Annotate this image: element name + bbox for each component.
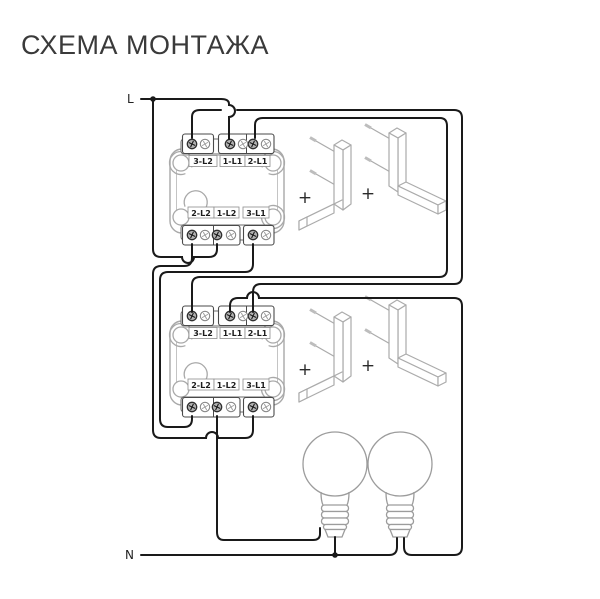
fixtures-group-2 <box>299 297 446 403</box>
switch-1-mechanism <box>169 134 284 245</box>
fixtures-group-1 <box>299 125 446 231</box>
plus-sign: + <box>298 360 312 380</box>
terminal-label: 1-L1 <box>223 157 243 166</box>
wire-line-feed-top <box>141 99 235 139</box>
terminal-label: 1-L2 <box>217 209 237 218</box>
terminal-label: 1-L1 <box>223 329 243 338</box>
label-line: L <box>127 92 134 106</box>
terminal-label: 2-L1 <box>248 157 268 166</box>
terminal-label: 3-L1 <box>246 209 266 218</box>
plus-sign: + <box>361 356 375 376</box>
plus-sign: + <box>361 184 375 204</box>
terminal-label: 3-L2 <box>193 157 213 166</box>
switch-2-mechanism <box>169 306 284 417</box>
lamp-bulb-1 <box>303 432 367 537</box>
installation-diagram: СХЕМА МОНТАЖА <box>0 0 600 599</box>
diagram-canvas: L N + + + + 3-L2 1-L1 2-L1 2-L2 1-L2 3-L… <box>0 0 600 599</box>
terminal-label: 2-L1 <box>248 329 268 338</box>
junction-dot-line <box>150 96 156 102</box>
terminal-label: 3-L2 <box>193 329 213 338</box>
terminal-label: 2-L2 <box>191 381 211 390</box>
terminal-label: 1-L2 <box>217 381 237 390</box>
junction-dot-neutral <box>332 552 338 558</box>
plus-sign: + <box>298 188 312 208</box>
wire-switch2-to-lamp1 <box>217 416 320 540</box>
lamp-bulb-2 <box>368 432 432 537</box>
terminal-label: 2-L2 <box>191 209 211 218</box>
label-neutral: N <box>125 548 134 562</box>
terminal-label: 3-L1 <box>246 381 266 390</box>
